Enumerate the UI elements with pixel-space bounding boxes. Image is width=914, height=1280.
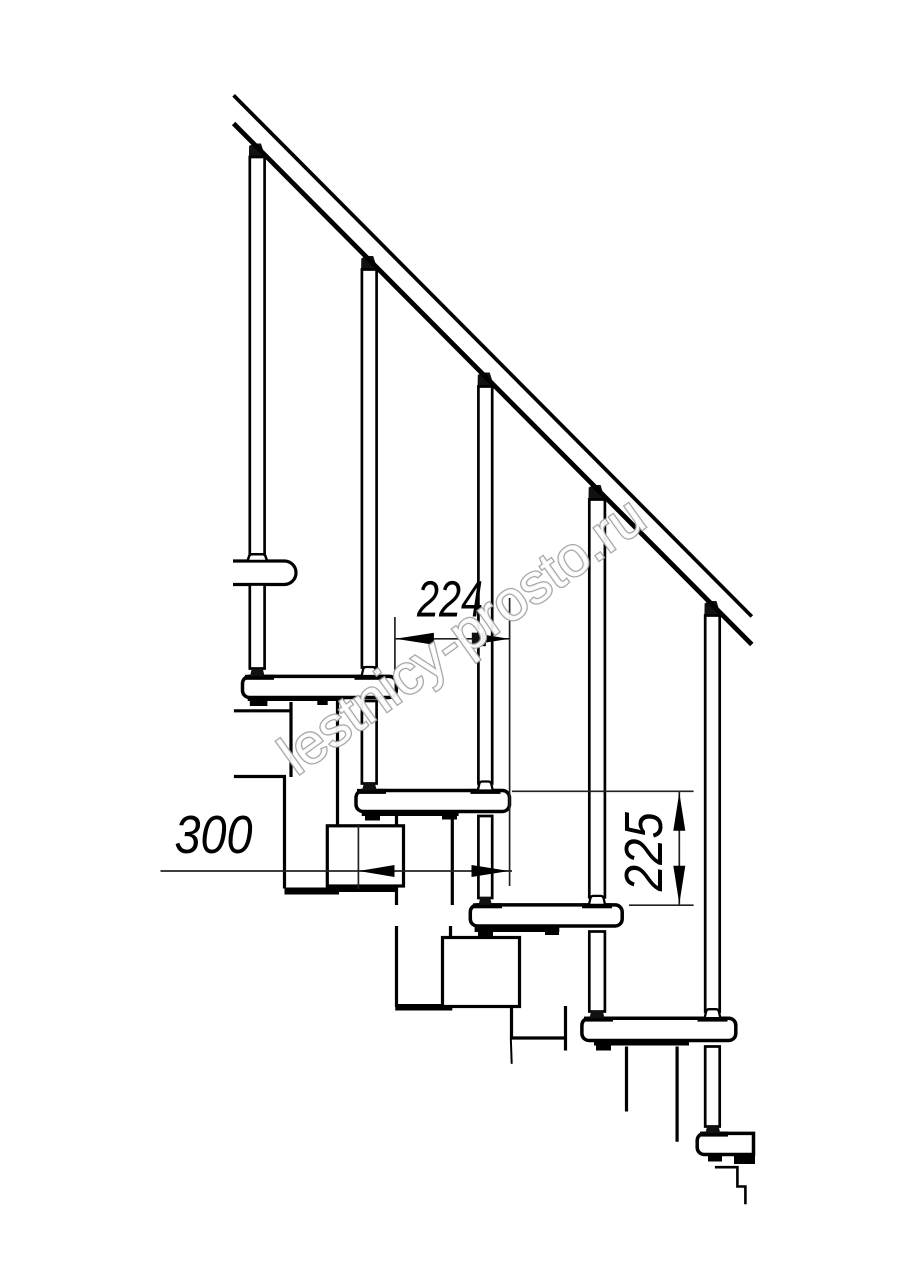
svg-text:225: 225 [614, 811, 674, 892]
svg-text:300: 300 [175, 805, 253, 865]
